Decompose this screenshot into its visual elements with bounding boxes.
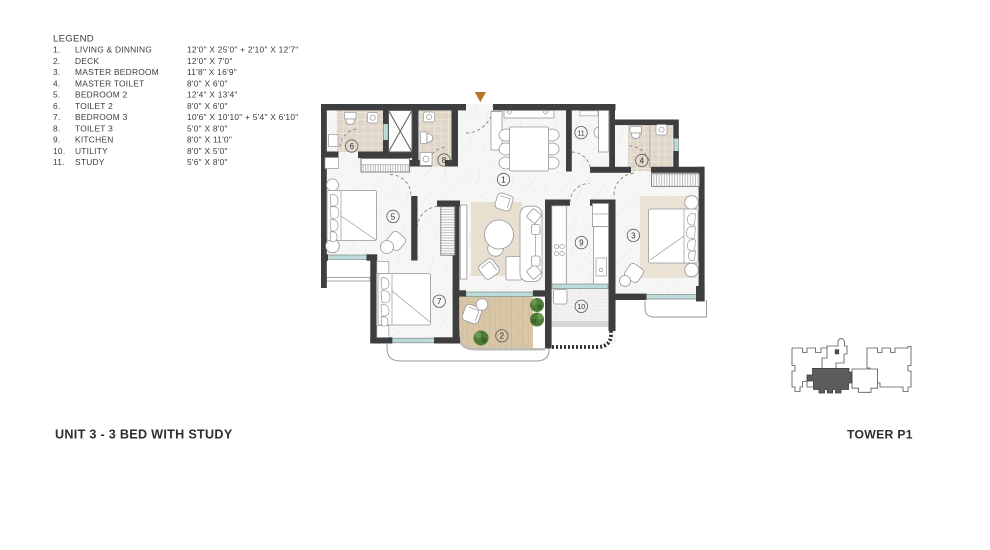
svg-text:5'0" X 8'0": 5'0" X 8'0"	[187, 123, 228, 133]
svg-text:10.: 10.	[53, 146, 65, 156]
svg-text:1: 1	[501, 175, 506, 184]
svg-text:1.: 1.	[53, 45, 61, 55]
svg-text:MASTER BEDROOM: MASTER BEDROOM	[75, 67, 159, 77]
svg-text:8'0" X 5'0": 8'0" X 5'0"	[187, 146, 228, 156]
svg-text:DECK: DECK	[75, 56, 99, 66]
svg-text:5.: 5.	[53, 90, 61, 100]
svg-text:12'0" X 25'0" + 2'10" X 12'7": 12'0" X 25'0" + 2'10" X 12'7"	[187, 45, 298, 55]
svg-text:KITCHEN: KITCHEN	[75, 135, 114, 145]
svg-text:6: 6	[349, 142, 354, 151]
svg-text:3.: 3.	[53, 67, 61, 77]
svg-text:LEGEND: LEGEND	[53, 34, 94, 45]
svg-text:BEDROOM 3: BEDROOM 3	[75, 112, 128, 122]
svg-text:8'0" X 6'0": 8'0" X 6'0"	[187, 101, 228, 111]
svg-text:3: 3	[631, 231, 636, 240]
svg-text:UTILITY: UTILITY	[75, 146, 108, 156]
svg-text:TOILET 3: TOILET 3	[75, 123, 113, 133]
svg-text:11'8" X 16'9": 11'8" X 16'9"	[187, 67, 237, 77]
svg-text:TOILET 2: TOILET 2	[75, 101, 113, 111]
svg-text:8'0" X 6'0": 8'0" X 6'0"	[187, 78, 228, 88]
svg-text:4: 4	[640, 156, 645, 165]
svg-text:5'6" X 8'0": 5'6" X 8'0"	[187, 157, 228, 167]
svg-text:8.: 8.	[53, 123, 61, 133]
svg-text:11.: 11.	[53, 157, 65, 167]
svg-text:MASTER TOILET: MASTER TOILET	[75, 78, 145, 88]
svg-text:6.: 6.	[53, 101, 61, 111]
svg-text:LIVING & DINNING: LIVING & DINNING	[75, 45, 152, 55]
svg-text:10: 10	[577, 304, 585, 311]
svg-text:8'0" X 11'0": 8'0" X 11'0"	[187, 135, 232, 145]
svg-text:BEDROOM 2: BEDROOM 2	[75, 90, 128, 100]
svg-text:12'4" X 13'4": 12'4" X 13'4"	[187, 90, 238, 100]
svg-text:5: 5	[391, 212, 396, 221]
svg-text:7.: 7.	[53, 112, 61, 122]
svg-text:10'6" X 10'10" + 5'4" X 6'10": 10'6" X 10'10" + 5'4" X 6'10"	[187, 112, 298, 122]
svg-text:9: 9	[579, 239, 584, 248]
svg-text:UNIT 3 - 3 BED WITH STUDY: UNIT 3 - 3 BED WITH STUDY	[55, 428, 233, 442]
svg-text:STUDY: STUDY	[75, 157, 105, 167]
svg-text:12'0" X 7'0": 12'0" X 7'0"	[187, 56, 233, 66]
svg-text:9.: 9.	[53, 135, 61, 145]
svg-text:2.: 2.	[53, 56, 61, 66]
svg-text:4.: 4.	[53, 78, 61, 88]
svg-text:2: 2	[500, 332, 505, 341]
svg-text:8: 8	[442, 156, 447, 165]
svg-text:11: 11	[577, 131, 584, 138]
svg-text:7: 7	[437, 297, 442, 306]
svg-text:TOWER P1: TOWER P1	[847, 428, 913, 442]
